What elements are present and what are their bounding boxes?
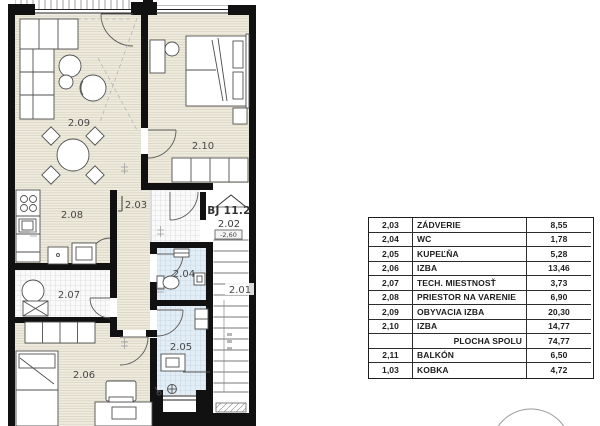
- armchair: [80, 75, 106, 101]
- table-row: 2,04 WC 1,78: [369, 233, 593, 248]
- total-label-cell: PLOCHA SPOLU: [413, 334, 527, 349]
- boiler: [22, 280, 44, 302]
- table-row: 2,09 OBYVACIA IZBA 20,30: [369, 305, 593, 320]
- room-name-cell: IZBA: [413, 320, 527, 335]
- room-number-cell: 2,11: [369, 349, 413, 364]
- room-area-cell: 20,30: [527, 305, 591, 320]
- nightstand: [233, 108, 247, 124]
- room-area-cell: 1,78: [527, 233, 591, 248]
- table-row: 2,11 BALKÓN 6,50: [369, 349, 593, 364]
- table-row: 2,10 IZBA 14,77: [369, 320, 593, 335]
- room-number-cell: 2,10: [369, 320, 413, 335]
- room-name-cell: OBYVACIA IZBA: [413, 305, 527, 320]
- floor-plan-sheet: 2.09 2.10 2.08 2.03 2.07 2.04 2.05 2.06 …: [0, 0, 600, 426]
- elevation-value: -2,60: [220, 231, 237, 239]
- unit-space-label: 2.02: [218, 219, 240, 230]
- room-area-cell: 4,72: [527, 363, 591, 378]
- desk-210: [150, 40, 165, 73]
- stool-210: [165, 42, 179, 56]
- washbasin: [161, 354, 185, 371]
- total-area-cell: 74,77: [527, 334, 591, 349]
- room-number-cell: 2,06: [369, 262, 413, 277]
- room-area-cell: 6,90: [527, 291, 591, 306]
- room-label-2-08: 2.08: [61, 210, 83, 221]
- room-name-cell: WC: [413, 233, 527, 248]
- coffee-table: [59, 55, 81, 77]
- room-label-2-09: 2.09: [68, 118, 90, 129]
- room-label-2-04: 2.04: [173, 269, 195, 280]
- room-label-2-05: 2.05: [170, 342, 192, 353]
- room-name-cell: BALKÓN: [413, 349, 527, 364]
- room-name-cell: KUPEĽŇA: [413, 247, 527, 262]
- room-number-cell: 2,09: [369, 305, 413, 320]
- shower-column: [195, 309, 208, 329]
- room-number-cell: 2,08: [369, 291, 413, 306]
- double-bed: [186, 34, 249, 108]
- table-row: 2,06 IZBA 13,46: [369, 262, 593, 277]
- stair-annotation-marks: [227, 333, 232, 350]
- room-number-cell: 2,05: [369, 247, 413, 262]
- washing-machine: [23, 301, 48, 316]
- room-area-cell: 13,46: [527, 262, 591, 277]
- desk-206: [95, 402, 152, 426]
- room-number-cell: 2,04: [369, 233, 413, 248]
- room-label-2-01: 2.01: [229, 285, 251, 296]
- room-area-cell: 5,28: [527, 247, 591, 262]
- room-label-2-06: 2.06: [73, 370, 95, 381]
- room-name-cell: IZBA: [413, 262, 527, 277]
- room-number-cell: [369, 334, 413, 349]
- room-number-cell: 1,03: [369, 363, 413, 378]
- room-name-cell: KOBKA: [413, 363, 527, 378]
- area-table: 2,03 ZÁDVERIE 8,55 2,04 WC 1,78 2,05 KUP…: [368, 217, 594, 379]
- sheet-stamp-circle: [491, 409, 571, 426]
- wardrobe-210: [172, 158, 248, 182]
- wc-basin: [174, 249, 189, 257]
- room-number-cell: 2,03: [369, 218, 413, 233]
- room-number-cell: 2,07: [369, 276, 413, 291]
- table-row: 2,05 KUPEĽŇA 5,28: [369, 247, 593, 262]
- room-name-cell: ZÁDVERIE: [413, 218, 527, 233]
- room-area-cell: 14,77: [527, 320, 591, 335]
- side-table: [59, 75, 73, 89]
- room-label-2-07: 2.07: [58, 290, 80, 301]
- table-total-row: PLOCHA SPOLU 74,77: [369, 334, 593, 349]
- table-row: 1,03 KOBKA 4,72: [369, 363, 593, 378]
- wardrobe-206: [25, 322, 95, 343]
- table-row: 2,08 PRIESTOR NA VARENIE 6,90: [369, 291, 593, 306]
- table-row: 2,07 TECH. MIESTNOSŤ 3,73: [369, 276, 593, 291]
- floor-drain: [168, 385, 177, 394]
- table-row: 2,03 ZÁDVERIE 8,55: [369, 218, 593, 233]
- chair-206: [106, 381, 136, 402]
- room-name-cell: TECH. MIESTNOSŤ: [413, 276, 527, 291]
- room-label-2-10: 2.10: [192, 141, 214, 152]
- doormat: [216, 403, 246, 412]
- wc-shelf: [194, 273, 205, 285]
- room-area-cell: 3,73: [527, 276, 591, 291]
- cooktop-burner: [21, 196, 28, 203]
- room-name-cell: PRIESTOR NA VARENIE: [413, 291, 527, 306]
- bed-206: [16, 351, 58, 426]
- room-area-cell: 6,50: [527, 349, 591, 364]
- room-label-2-03: 2.03: [125, 200, 147, 211]
- unit-label: BJ 11.2: [207, 205, 251, 217]
- room-area-cell: 8,55: [527, 218, 591, 233]
- kitchen-counter: [16, 190, 40, 262]
